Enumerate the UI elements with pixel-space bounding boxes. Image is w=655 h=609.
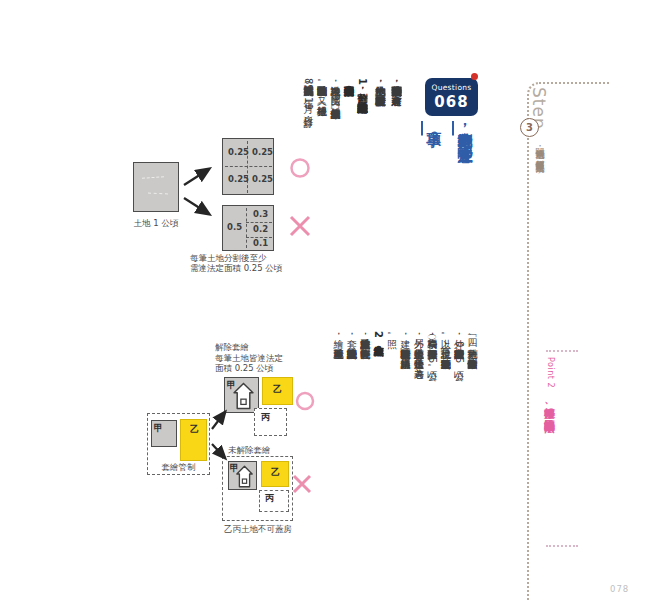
split-ok-square: 0.25 0.25 0.25 0.25 — [222, 138, 274, 195]
section2-heading: 2農地有無套繪？ — [372, 331, 385, 569]
plot-b-label: 乙 — [273, 383, 282, 396]
quote-col: （或稱為宗），每筆面積至少都得有0.25公頃。 — [425, 331, 438, 569]
quote-col: 照。 — [385, 331, 398, 569]
not-released-plot-a-square: 甲 — [228, 461, 257, 490]
section2-body-col: 若該筆農地先前設定了套繪，但在分割時沒有先解 — [358, 331, 371, 569]
question-title: 進行土地分割時，宜注意哪些 事項？ — [418, 121, 480, 316]
page-number: 078 — [610, 584, 629, 594]
released-caption-line: 每筆土地皆達法定 — [215, 353, 283, 364]
house-icon — [236, 465, 253, 488]
section1-heading-col: 1分割前，需先確認該筆土地除了建物之外的面積， — [356, 78, 370, 326]
section1-heading-col: 是否達到法律規定的最小面積？ — [342, 78, 356, 326]
released-plot-b-square: 乙 — [262, 377, 293, 405]
question-badge-label: Questions — [425, 83, 478, 92]
section1-body-col: 割執行要點》（內政部於民國89年7月19日修訂）： — [302, 78, 316, 326]
land-source-square — [133, 162, 179, 212]
split-rule-caption-line: 需達法定面積 0.25 公頃 — [190, 263, 310, 273]
arrow-up-icon — [212, 412, 225, 429]
section1-body-col: 規範了農地分割時的面積限制。又，根據《耕地分 — [315, 78, 329, 326]
point-divider-top — [546, 350, 578, 352]
ok-mark-icon — [297, 393, 313, 409]
plot-b-label: 乙 — [271, 466, 280, 479]
overlay-arrows — [212, 412, 225, 458]
plot-c-label: 丙 — [265, 492, 274, 505]
section2-body-col: 繪，地就不能再蓋農舍了。 — [332, 331, 345, 569]
not-released-box: 甲 乙 丙 — [222, 456, 293, 521]
split-rule-caption: 每筆土地分割後至少 需達法定面積 0.25 公頃 — [190, 253, 310, 273]
x-mark-icon — [294, 476, 310, 492]
step-description: 避開觸法地雷，幫你瞭解買地蓋屋法規 — [533, 141, 546, 309]
plot-b-rect: 乙 — [180, 419, 207, 461]
split-ng-square: 0.5 0.3 0.2 0.1 — [222, 205, 274, 251]
plot-area-value: 0.25 — [228, 174, 249, 184]
step-number-badge: 3 — [520, 118, 539, 137]
released-plot-c-square: 丙 — [254, 408, 287, 436]
released-caption-line: 解除套繪 — [215, 342, 283, 353]
split-rule-caption-line: 每筆土地分割後至少 — [190, 253, 310, 263]
question-badge-number: 068 — [425, 93, 478, 111]
section1-text: 1分割前，需先確認該筆土地除了建物之外的面積， 是否達到法律規定的最小面積？ 以… — [297, 78, 369, 326]
not-released-caption: 未解除套繪 — [228, 445, 271, 456]
not-released-plot-b-square: 乙 — [261, 461, 289, 487]
summary-col: 分割後的面積皆須達法定的最小面積，若有違建 — [388, 78, 404, 318]
plot-a-label: 甲 — [154, 422, 163, 435]
overlay-source-caption: 套繪管制 — [148, 462, 209, 473]
book-page: Step 3 避開觸法地雷，幫你瞭解買地蓋屋法規 Point 2 產權轉移、地目… — [0, 0, 655, 609]
house-icon — [233, 382, 254, 410]
land-source-label: 土地 1 公頃 — [124, 218, 188, 230]
released-caption-line: 面積 0.25 公頃 — [215, 363, 283, 374]
arrow-up-icon — [184, 169, 209, 185]
plot-area-value: 0.2 — [253, 224, 268, 234]
released-caption: 解除套繪 每筆土地皆達法定 面積 0.25 公頃 — [215, 342, 283, 374]
dashed-divider — [225, 166, 272, 167]
not-released-plot-c-square: 丙 — [259, 490, 289, 512]
overlay-source-box: 甲 乙 套繪管制 — [147, 413, 210, 475]
question-badge: Questions 068 — [425, 78, 478, 116]
question-title-col: 事項？ — [418, 121, 449, 316]
section1-quote-and-section2: 「四、耕地之分割，除有本條例第十六條各款情形 外，其分割後每人所有每宗耕地面積應… — [327, 331, 479, 569]
plot-b-label: 乙 — [190, 423, 199, 436]
point-divider-bottom — [546, 545, 578, 547]
summary-col: 的地上物，申請時有可能被駁回。 — [372, 78, 388, 318]
plot-area-value: 0.3 — [253, 209, 268, 219]
section1-body-col: 以農地來說，民國89年修訂的《農業發展條例》就 — [329, 78, 343, 326]
quote-col: 外，其分割後每人所有每宗耕地面積應在0.25公頃 — [452, 331, 465, 569]
split-arrows — [184, 169, 209, 214]
question-title-col: 進行土地分割時，宜注意哪些 — [449, 121, 480, 316]
section2-body-col: 套，就會變成分割後的每塊土地也跟著被設定套 — [345, 331, 358, 569]
quote-col: 另外，土地上是否有建物，建物是否合法？若為違 — [412, 331, 425, 569]
quote-col: 建，申請分割時可能就會被駁回，必須補請使用執 — [399, 331, 412, 569]
plot-area-value: 0.25 — [252, 174, 273, 184]
quote-col: 以上。」也就是說，分割後的農地不管要分成幾筆 — [439, 331, 452, 569]
land-sketch-marks — [142, 176, 164, 179]
dashed-divider — [246, 222, 272, 223]
plot-c-label: 丙 — [261, 411, 270, 424]
plot-area-value: 0.25 — [228, 147, 249, 157]
arrow-down-icon — [184, 198, 209, 214]
point-sidebar: Point 2 產權轉移、地目變更的相關法令 — [541, 357, 560, 542]
badge-dot-icon — [471, 73, 478, 80]
point-title: 產權轉移、地目變更的相關法令 — [543, 399, 557, 414]
dashed-divider — [246, 208, 247, 248]
not-released-footer: 乙丙土地不可蓋房 — [224, 524, 292, 535]
plot-area-value: 0.25 — [252, 147, 273, 157]
plot-area-value: 0.5 — [227, 222, 242, 232]
plot-a-square: 甲 — [151, 420, 177, 447]
question-summary: 分割後的面積皆須達法定的最小面積，若有違建 的地上物，申請時有可能被駁回。 — [368, 78, 404, 318]
quote-col: 「四、耕地之分割，除有本條例第十六條各款情形 — [466, 331, 479, 569]
plot-area-value: 0.1 — [253, 238, 268, 248]
land-sketch-marks — [148, 192, 168, 194]
point-label: Point 2 — [546, 357, 555, 388]
